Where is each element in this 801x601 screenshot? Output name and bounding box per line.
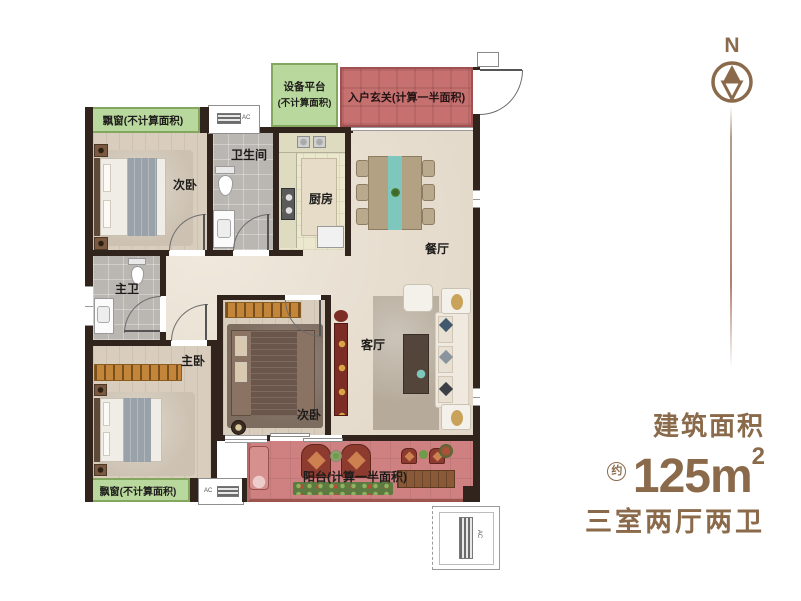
bed-blanket [123,398,151,462]
balcony-plant [439,444,453,458]
washing-machine [249,446,269,490]
ac-label: AC [204,488,212,494]
wall-block [85,478,93,502]
floorplan-page: AC AC 飘窗(不计算面积) 设备平台 ( [0,0,801,601]
equipment-platform-label-2: (不计算面积) [270,95,339,109]
entry-door-leaf [480,69,522,71]
bay-window-bottom: 飘窗(不计算面积) [86,478,190,502]
bathroom-basin [217,219,231,238]
tv-console [334,310,348,322]
window [473,388,480,406]
entry-foyer: 入户玄关(计算一半面积) [340,67,473,127]
living-label: 客厅 [361,336,385,353]
pillow [103,164,111,192]
equipment-platform-label-1: 设备平台 [273,79,336,94]
armchair [403,284,433,312]
sliding-door-panel [303,438,343,442]
bathroom-basin [97,306,110,323]
kitchen-sink [297,136,310,148]
toilet-tank [215,166,235,174]
window [85,286,93,326]
door-leaf [319,300,321,336]
bathroom-label: 卫生间 [231,146,267,163]
entry-foyer-label: 入户玄关(计算一半面积) [348,89,465,105]
wall [279,250,303,256]
bay-window-top-label: 飘窗(不计算面积) [103,113,184,128]
area-exponent: 2 [752,443,765,470]
entry-door-arc [480,70,523,115]
area-title: 建筑面积 [525,412,765,441]
nightstand [94,237,108,250]
equipment-platform: 设备平台 (不计算面积) [271,63,338,127]
pillow [103,402,110,426]
area-number: 125m [633,450,752,503]
tv-console [334,323,348,416]
pillow [103,200,111,228]
bedroom-top-label: 次卧 [173,176,197,193]
wall-block [463,486,480,502]
window-balcony [225,435,267,443]
bedside-lamp [231,420,246,435]
ac-platform: AC [432,506,500,570]
kitchen-sink [313,136,326,148]
pillow [103,432,110,456]
master-bedroom-label: 主卧 [181,352,205,369]
pillow [235,336,247,356]
bedroom-center-label: 次卧 [297,406,321,423]
wall [345,127,351,256]
wall-block [200,107,209,133]
bed-blanket [127,158,157,236]
door-leaf [205,304,207,340]
bay-window-bottom-label: 飘窗(不计算面积) [100,483,177,498]
nightstand [94,384,107,396]
door-leaf [267,214,269,250]
dining-chair [422,160,435,177]
fridge [317,226,344,248]
side-table [441,404,471,430]
side-table [441,288,471,314]
north-label: N [710,34,754,58]
area-row: 约 125m2 [525,445,765,501]
table-plant [391,188,400,197]
coffee-table [403,334,429,394]
kitchen-counter-top [279,133,345,153]
wall-block [85,107,93,133]
entry-threshold [477,52,499,67]
door-leaf [124,330,160,332]
bay-window-top: 飘窗(不计算面积) [86,107,200,133]
ac-recess: AC [208,105,260,134]
balcony-chair-small [401,448,417,464]
pillow [235,362,247,382]
balcony-label: 阳台(计算一半面积) [303,468,407,485]
wall [207,133,213,256]
dining-chair [422,208,435,225]
balcony-table-plant [330,450,342,462]
layout-summary: 三室两厅两卫 [525,507,765,538]
wardrobe [94,364,182,381]
ac-recess: AC [198,478,244,505]
balcony-plant-small [419,450,428,459]
wall-block [242,478,247,502]
ac-label: AC [476,530,482,538]
wall [273,133,279,250]
nightstand [94,144,108,157]
bed-blanket [251,330,297,416]
floor-plan: AC AC 飘窗(不计算面积) 设备平台 ( [85,58,485,578]
master-bath-label: 主卫 [115,280,139,297]
divider-line [730,106,732,368]
toilet-tank [128,258,146,265]
approx-badge: 约 [607,462,626,481]
kitchen-label: 厨房 [309,190,333,207]
dining-chair [422,184,435,201]
wall [217,295,223,435]
stove [281,188,295,220]
nightstand [94,464,107,476]
ac-label: AC [242,115,250,121]
compass-icon [710,58,754,106]
window [473,190,480,208]
dining-label: 餐厅 [425,240,449,257]
door-leaf [203,214,205,250]
area-panel: 建筑面积 约 125m2 三室两厅两卫 [525,412,765,538]
wall [325,300,331,435]
wall-block [190,478,198,502]
sliding-door-panel [270,433,310,437]
entry-door-opening [473,70,480,114]
